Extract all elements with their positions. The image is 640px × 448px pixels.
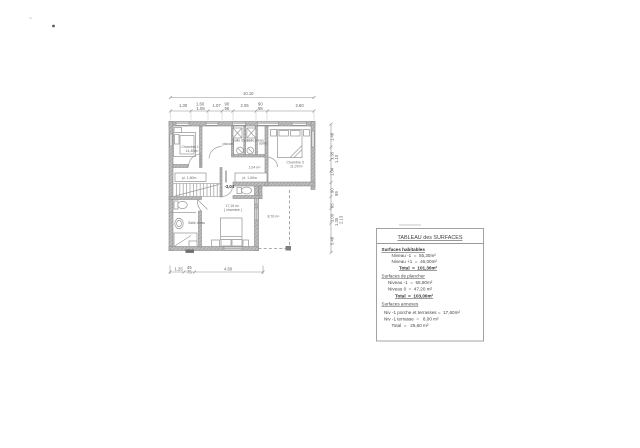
svg-text:Total = 103,00m²: Total = 103,00m² bbox=[395, 294, 434, 299]
svg-text:2.60: 2.60 bbox=[296, 103, 305, 108]
svg-text:14,40m²: 14,40m² bbox=[186, 149, 200, 153]
svg-text:Niv -1 terrasse = 8,00 m²: Niv -1 terrasse = 8,00 m² bbox=[384, 317, 439, 322]
svg-text:2.05: 2.05 bbox=[241, 103, 250, 108]
svg-text:Total = 101,30m²: Total = 101,30m² bbox=[399, 266, 438, 271]
svg-text:pl. 1,60m: pl. 1,60m bbox=[182, 176, 196, 180]
svg-text:1.10: 1.10 bbox=[334, 154, 339, 163]
svg-text:1.08: 1.08 bbox=[197, 106, 206, 111]
svg-text:11,07m²: 11,07m² bbox=[290, 165, 303, 169]
svg-text:Niv -1 porche et terrasses =: Niv -1 porche et terrasses = 17,60m² bbox=[384, 310, 460, 315]
svg-text:1.48: 1.48 bbox=[330, 132, 335, 141]
svg-text:2.13: 2.13 bbox=[339, 215, 344, 224]
svg-text:Total = 25,60 m²: Total = 25,60 m² bbox=[392, 323, 429, 328]
svg-text:-3,04: -3,04 bbox=[225, 184, 235, 189]
svg-text:TABLEAU des SURFACES: TABLEAU des SURFACES bbox=[398, 235, 463, 241]
svg-text:98: 98 bbox=[258, 106, 263, 111]
svg-text:( chambre ): ( chambre ) bbox=[224, 208, 242, 212]
svg-text:Niveau 0 = 47,20 m²: Niveau 0 = 47,20 m² bbox=[388, 287, 433, 292]
svg-text:Surfaces annexes: Surfaces annexes bbox=[382, 302, 419, 307]
svg-text:4.60: 4.60 bbox=[224, 267, 233, 272]
svg-text:Salle d'eau: Salle d'eau bbox=[188, 221, 205, 225]
svg-text:1.04: 1.04 bbox=[330, 167, 335, 176]
svg-text:1.25: 1.25 bbox=[175, 267, 184, 272]
svg-text:8,76 m²: 8,76 m² bbox=[268, 215, 281, 219]
svg-text:pl. 1,60m: pl. 1,60m bbox=[243, 176, 257, 180]
svg-text:cellier: cellier bbox=[259, 142, 269, 146]
svg-text:1.07: 1.07 bbox=[213, 103, 222, 108]
svg-text:1.30: 1.30 bbox=[179, 103, 188, 108]
svg-text:99: 99 bbox=[334, 191, 339, 196]
svg-text:1,04 m²: 1,04 m² bbox=[249, 166, 262, 170]
svg-text:10.10: 10.10 bbox=[243, 91, 254, 96]
svg-text:95: 95 bbox=[330, 203, 335, 208]
svg-text:Niveau -1 = 55,30m²: Niveau -1 = 55,30m² bbox=[392, 253, 437, 258]
svg-text:5.48: 5.48 bbox=[330, 236, 335, 245]
svg-text:Niveau -1 = 55,80m²: Niveau -1 = 55,80m² bbox=[388, 280, 433, 285]
svg-text:Niveau +1 = 46,00m²: Niveau +1 = 46,00m² bbox=[392, 259, 438, 264]
svg-text:96: 96 bbox=[225, 106, 230, 111]
svg-text:Surfaces habitables: Surfaces habitables bbox=[382, 247, 426, 252]
svg-text:placard: placard bbox=[223, 142, 235, 146]
svg-text:Surfaces de plancher: Surfaces de plancher bbox=[382, 274, 426, 279]
